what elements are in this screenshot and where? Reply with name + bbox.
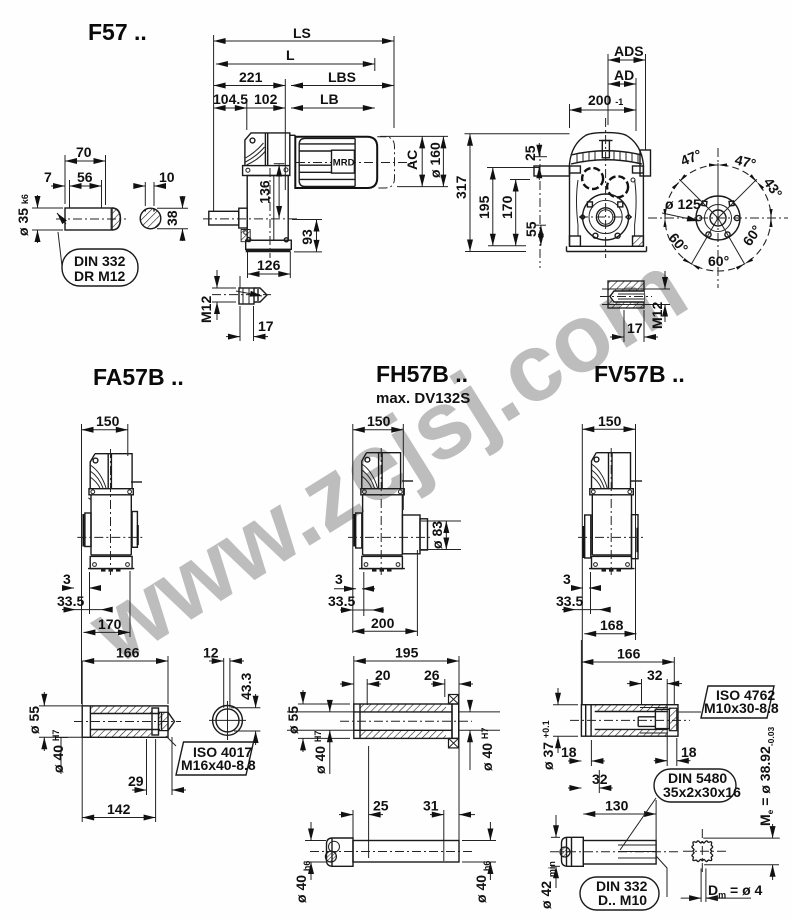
svg-text:168: 168 [600,617,624,633]
svg-text:56: 56 [77,169,93,185]
svg-text:10: 10 [159,169,175,185]
svg-text:D.. M10: D.. M10 [598,892,647,908]
svg-text:ADS: ADS [614,43,644,59]
svg-text:M16x40-8.8: M16x40-8.8 [181,757,256,773]
svg-text:MRD: MRD [333,158,355,169]
svg-text:L: L [286,47,295,63]
svg-text:170: 170 [499,195,515,219]
svg-text:F57 ..: F57 .. [88,19,147,45]
svg-text:33.5: 33.5 [328,593,355,609]
svg-text:18: 18 [561,744,577,760]
svg-text:142: 142 [107,801,131,817]
svg-text:M10x30-8.8: M10x30-8.8 [704,700,779,716]
svg-text:33.5: 33.5 [556,593,583,609]
svg-text:ø 55: ø 55 [26,706,42,734]
svg-text:200: 200 [371,615,395,631]
svg-text:26: 26 [424,667,440,683]
svg-text:LS: LS [293,25,311,41]
svg-text:max. DV132S: max. DV132S [376,390,470,407]
svg-text:3: 3 [563,571,571,587]
svg-text:M12: M12 [198,296,214,323]
svg-text:35x2x30x16: 35x2x30x16 [663,784,741,800]
svg-text:20: 20 [375,667,391,683]
svg-text:17: 17 [627,320,643,336]
svg-text:AD: AD [614,67,634,83]
svg-text:3: 3 [63,571,71,587]
svg-text:DR M12: DR M12 [74,268,126,284]
svg-text:126: 126 [257,257,281,273]
svg-text:ø 160: ø 160 [427,142,443,178]
svg-text:FV57B ..: FV57B .. [594,361,685,387]
svg-text:12: 12 [203,645,219,661]
svg-text:LBS: LBS [328,69,356,85]
svg-text:60°: 60° [708,253,729,269]
svg-text:25: 25 [522,145,538,161]
svg-text:FA57B ..: FA57B .. [93,364,184,390]
svg-text:ø 55: ø 55 [285,706,301,734]
svg-text:170: 170 [98,616,122,632]
svg-text:104.5: 104.5 [213,91,248,107]
svg-text:38: 38 [164,210,180,226]
svg-text:17: 17 [258,318,274,334]
svg-text:M12: M12 [649,302,665,329]
svg-text:29: 29 [128,773,144,789]
svg-text:43.3: 43.3 [238,673,254,700]
svg-text:93: 93 [299,229,315,245]
svg-text:25: 25 [373,798,389,814]
svg-text:195: 195 [476,195,492,219]
svg-text:166: 166 [617,646,641,662]
svg-text:AC: AC [404,150,420,170]
svg-text:DIN 332: DIN 332 [74,253,126,269]
svg-text:32: 32 [592,771,608,787]
svg-text:ø 83: ø 83 [429,521,445,549]
svg-text:FH57B ..: FH57B .. [376,361,468,387]
svg-text:18: 18 [681,744,697,760]
svg-text:150: 150 [598,413,622,429]
svg-text:32: 32 [647,667,663,683]
svg-text:3: 3 [335,571,343,587]
svg-text:136: 136 [257,180,273,204]
svg-text:150: 150 [96,413,120,429]
svg-text:70: 70 [76,144,92,160]
svg-text:150: 150 [367,413,391,429]
svg-text:7: 7 [44,169,52,185]
svg-text:102: 102 [254,91,278,107]
svg-text:31: 31 [423,798,439,814]
svg-text:33.5: 33.5 [57,593,84,609]
svg-text:317: 317 [453,175,469,199]
svg-text:Dm = ø 4: Dm = ø 4 [708,882,763,900]
svg-text:ø 125: ø 125 [665,196,701,212]
svg-text:221: 221 [239,69,263,85]
svg-text:195: 195 [395,645,419,661]
svg-text:LB: LB [320,91,339,107]
svg-text:55: 55 [523,221,539,237]
svg-text:166: 166 [116,645,140,661]
svg-text:130: 130 [605,798,629,814]
